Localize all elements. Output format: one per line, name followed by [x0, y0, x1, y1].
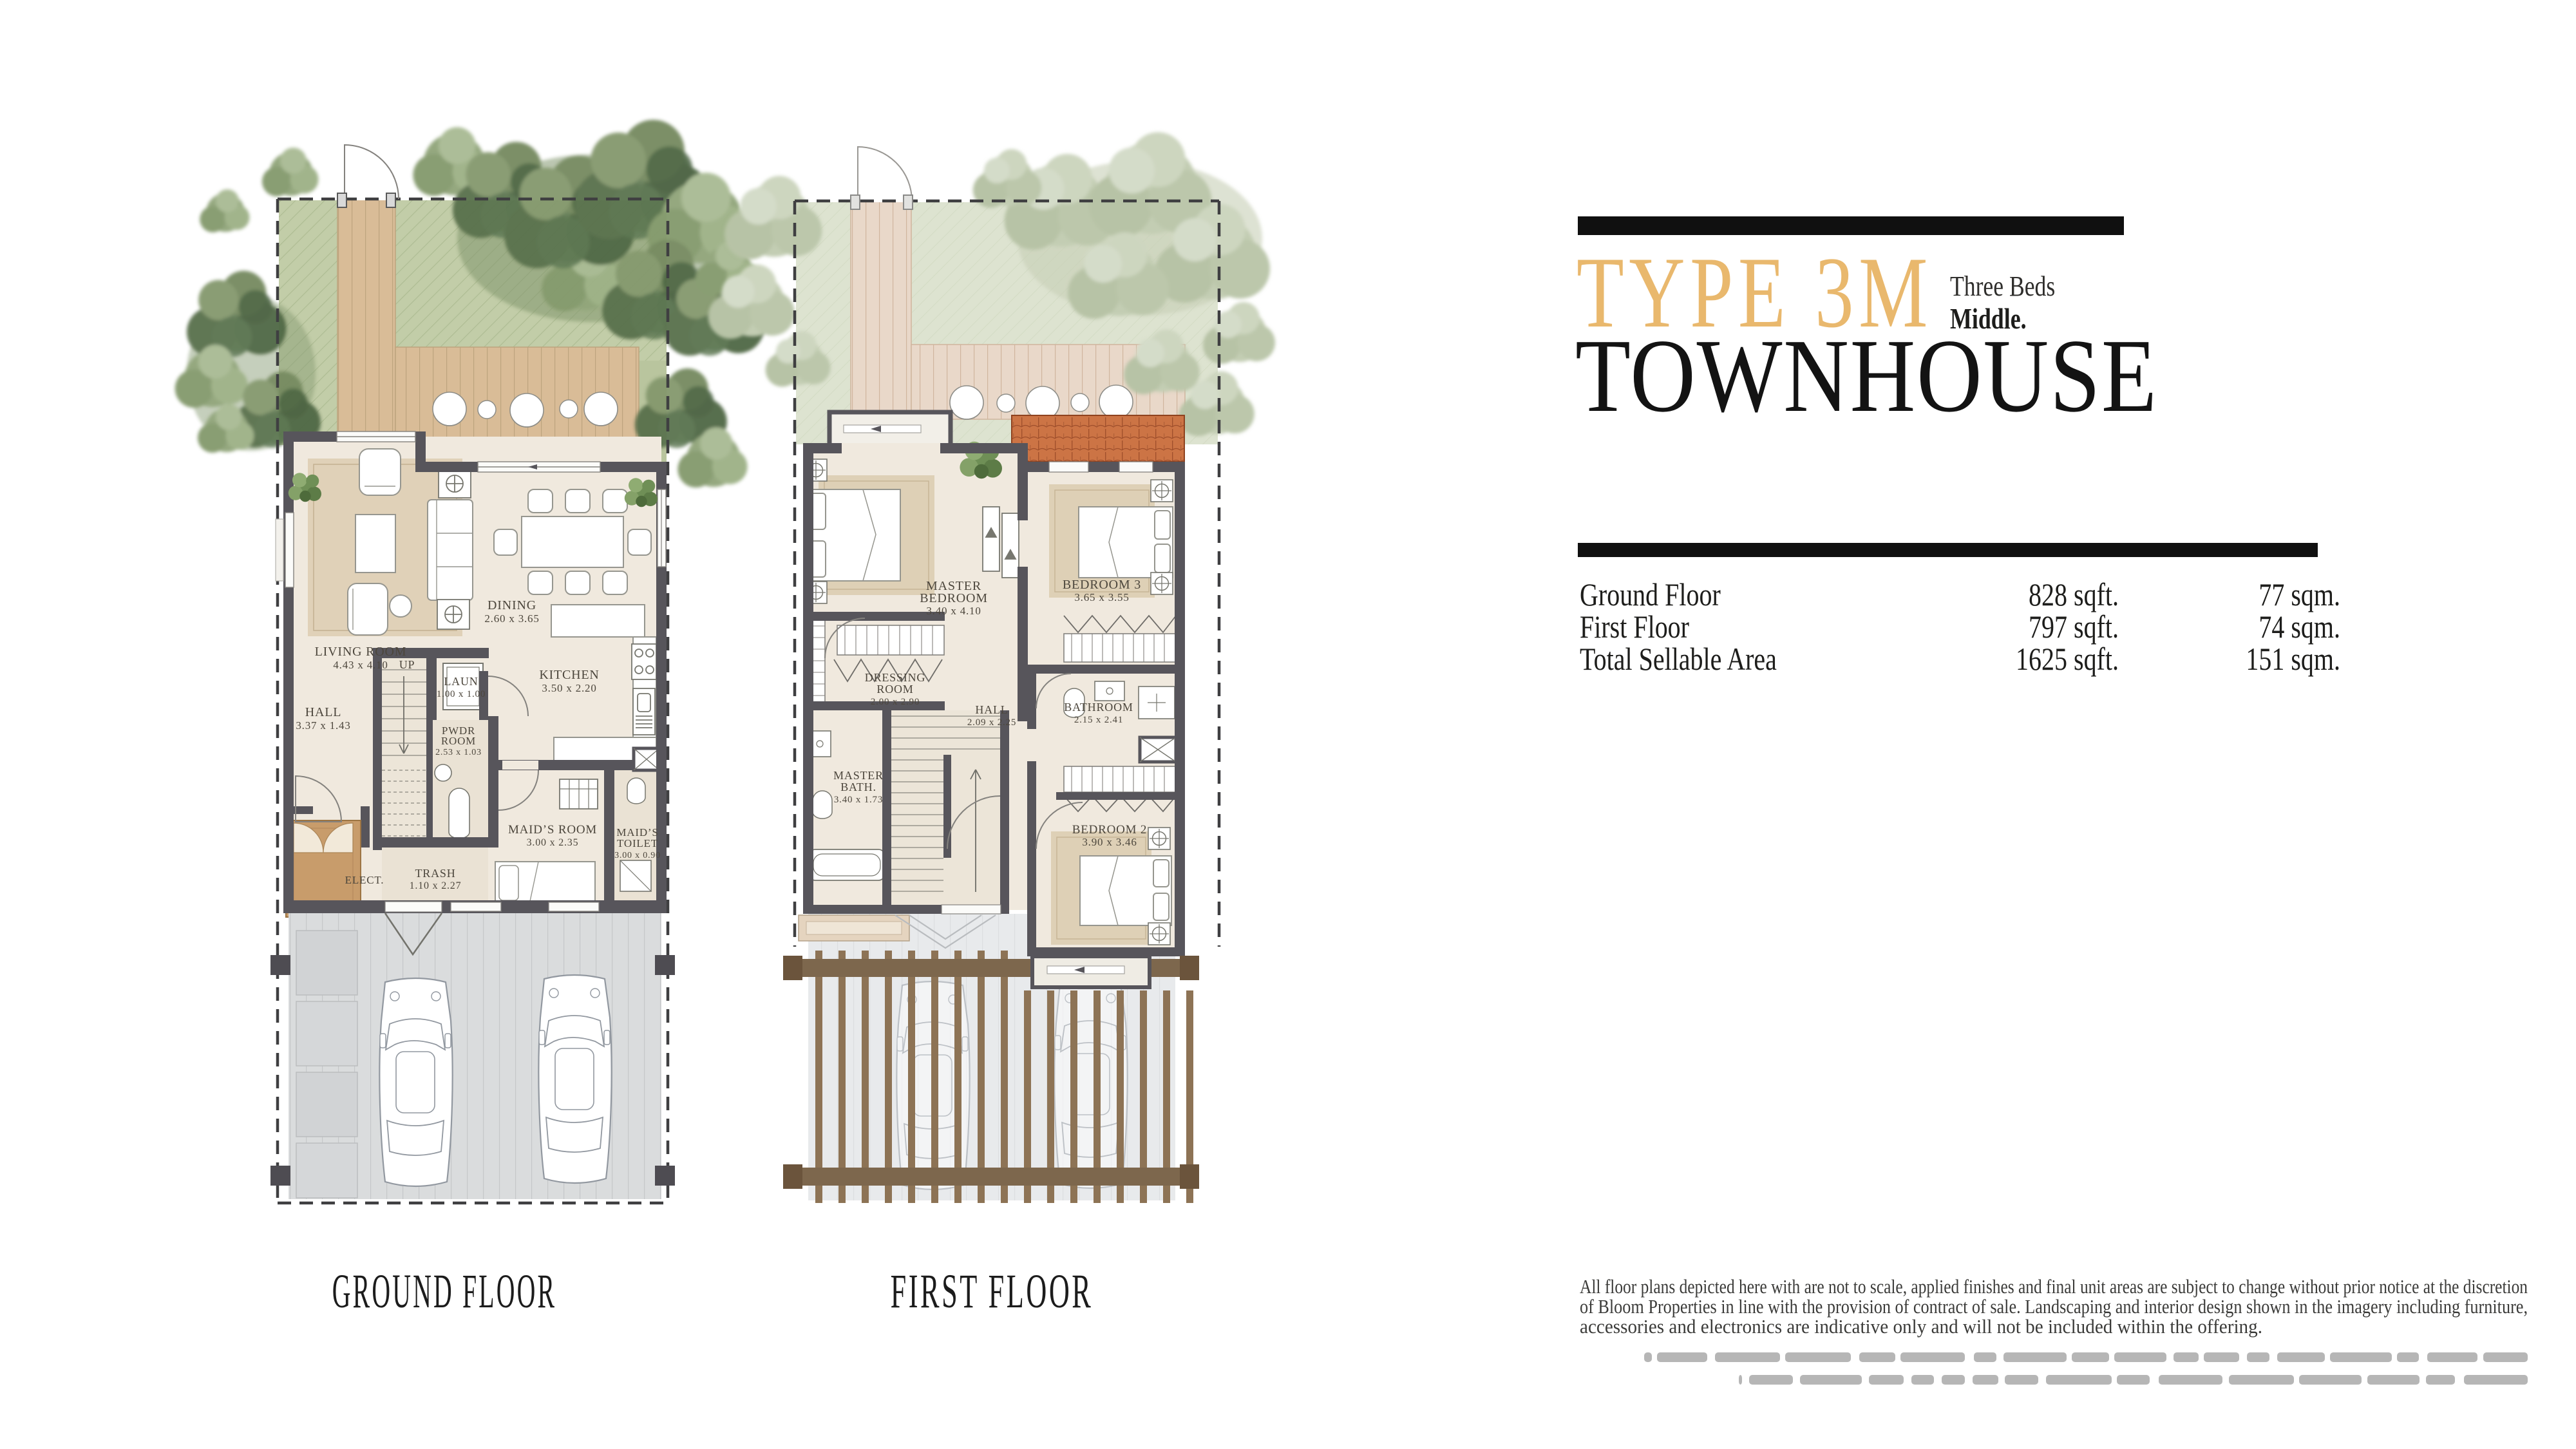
svg-text:2.60 x 3.65: 2.60 x 3.65 [484, 612, 539, 625]
svg-text:ROOM: ROOM [441, 735, 476, 747]
svg-text:1625 sqft.: 1625 sqft. [2016, 641, 2119, 677]
svg-text:GROUND FLOOR: GROUND FLOOR [332, 1265, 556, 1318]
svg-text:Total Sellable Area: Total Sellable Area [1580, 641, 1777, 677]
svg-text:accessories and electronics ar: accessories and electronics are indicati… [1580, 1315, 2262, 1338]
svg-text:BEDROOM 2: BEDROOM 2 [1072, 823, 1147, 837]
svg-text:UP: UP [399, 658, 415, 671]
svg-text:BEDROOM: BEDROOM [920, 591, 988, 605]
svg-text:MAID’S ROOM: MAID’S ROOM [508, 823, 597, 837]
svg-text:77 sqm.: 77 sqm. [2259, 577, 2340, 612]
svg-text:2.15 x 2.41: 2.15 x 2.41 [1074, 715, 1123, 725]
svg-text:2.53 x 1.03: 2.53 x 1.03 [435, 748, 482, 757]
svg-text:All floor plans depicted here: All floor plans depicted here with are n… [1580, 1275, 2528, 1298]
svg-text:BATH.: BATH. [840, 781, 876, 793]
svg-text:3.65 x 3.55: 3.65 x 3.55 [1074, 591, 1129, 603]
svg-text:3.40 x 1.73: 3.40 x 1.73 [834, 795, 883, 805]
svg-text:DRESSING: DRESSING [865, 671, 925, 684]
svg-text:MASTER: MASTER [833, 769, 884, 782]
svg-text:4.43 x 4.10: 4.43 x 4.10 [333, 659, 388, 671]
svg-text:797 sqft.: 797 sqft. [2029, 609, 2119, 645]
svg-text:First Floor: First Floor [1580, 609, 1689, 645]
svg-text:Ground Floor: Ground Floor [1580, 577, 1721, 612]
svg-text:of Bloom Properties in line wi: of Bloom Properties in line with the pro… [1580, 1295, 2528, 1318]
svg-text:LIVING ROOM: LIVING ROOM [315, 645, 407, 659]
svg-text:KITCHEN: KITCHEN [539, 668, 599, 682]
svg-text:TRASH: TRASH [415, 867, 455, 880]
svg-text:1.00 x 1.00: 1.00 x 1.00 [437, 689, 486, 699]
svg-text:3.90 x 3.46: 3.90 x 3.46 [1082, 836, 1137, 848]
svg-text:3.50 x 2.20: 3.50 x 2.20 [542, 682, 596, 694]
svg-text:2.09 x 2.25: 2.09 x 2.25 [967, 717, 1016, 728]
svg-text:1.10 x 2.27: 1.10 x 2.27 [410, 880, 462, 891]
svg-text:3.00 x 0.90: 3.00 x 0.90 [614, 851, 661, 860]
svg-text:DINING: DINING [488, 598, 536, 612]
svg-text:FIRST FLOOR: FIRST FLOOR [891, 1265, 1094, 1318]
svg-text:3.37 x 1.43: 3.37 x 1.43 [296, 719, 350, 732]
svg-text:3.00 x 2.35: 3.00 x 2.35 [527, 837, 579, 848]
svg-text:ROOM: ROOM [876, 683, 913, 696]
svg-text:TOWNHOUSE: TOWNHOUSE [1575, 317, 2158, 433]
svg-text:2.00 x 2.90: 2.00 x 2.90 [871, 697, 920, 707]
svg-text:LAUN: LAUN [444, 675, 478, 688]
svg-text:BATHROOM: BATHROOM [1064, 701, 1133, 714]
svg-text:3.40 x 4.10: 3.40 x 4.10 [926, 605, 981, 617]
svg-text:TOILET: TOILET [617, 837, 658, 849]
svg-text:BEDROOM 3: BEDROOM 3 [1063, 578, 1141, 592]
svg-text:ELECT.: ELECT. [345, 874, 384, 886]
svg-text:Three Beds: Three Beds [1950, 270, 2055, 301]
svg-text:74 sqm.: 74 sqm. [2259, 609, 2340, 645]
svg-text:HALL: HALL [975, 703, 1008, 716]
svg-text:151 sqm.: 151 sqm. [2246, 641, 2340, 677]
svg-text:HALL: HALL [305, 705, 342, 719]
svg-text:828 sqft.: 828 sqft. [2029, 577, 2119, 612]
